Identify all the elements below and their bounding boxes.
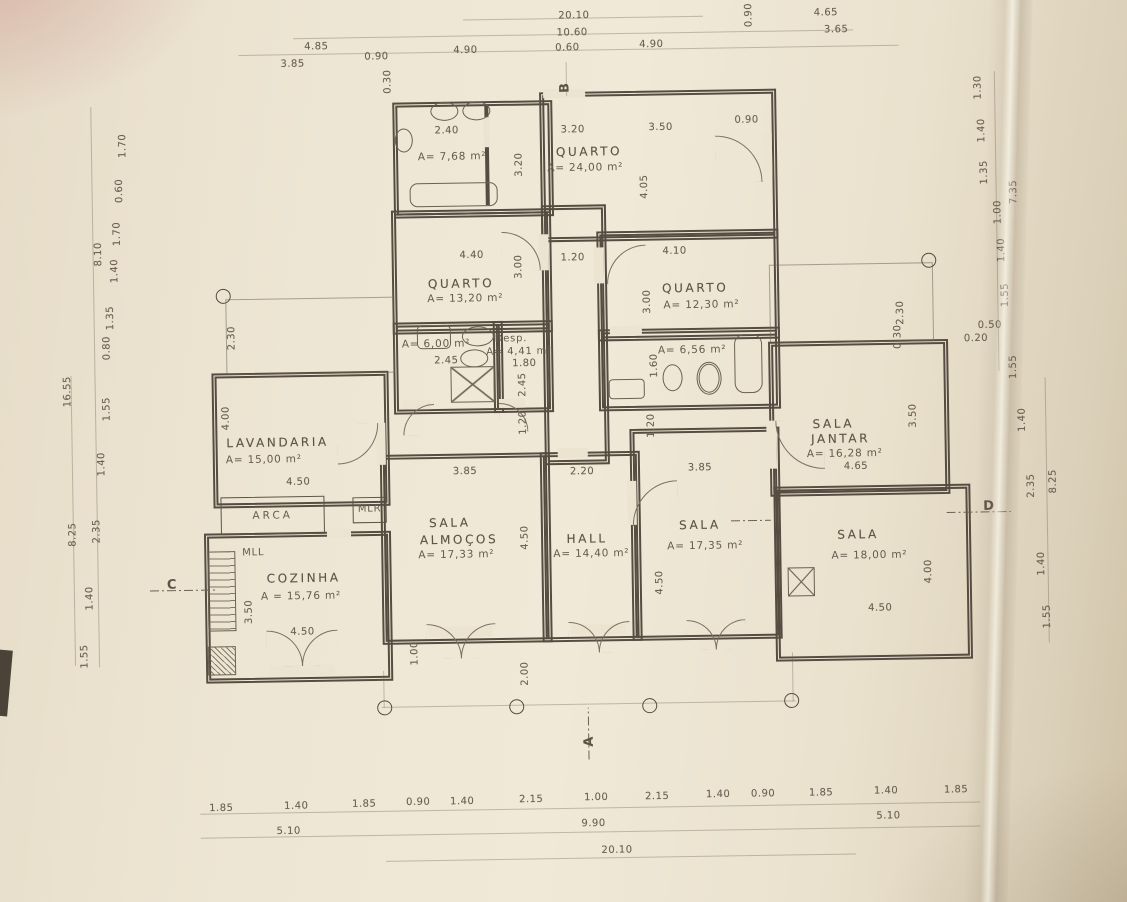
section-marker-b: B xyxy=(557,83,572,93)
dim-label: 1.70 xyxy=(112,222,123,246)
room-area: A= 6,00 m² xyxy=(402,337,471,350)
room-name: SALA xyxy=(837,527,879,542)
room-area: A= 15,00 m² xyxy=(226,453,302,466)
room-name: LAVANDARIA xyxy=(226,435,329,451)
dim-label: 4.65 xyxy=(814,7,838,18)
room-area: A= 17,33 m² xyxy=(418,548,494,561)
room-area: A= 12,30 m² xyxy=(663,298,739,311)
scanned-floor-plan-sheet: B A C D A= 7,68 m² QUARTO A= 24,00 m² QU… xyxy=(0,0,1127,902)
dim-label: 0.30 xyxy=(892,325,903,349)
room-area: A= 13,20 m² xyxy=(427,292,503,305)
dim-label: 8.25 xyxy=(67,522,78,546)
dim-label: 16.55 xyxy=(62,376,73,407)
dim-label: 1.40 xyxy=(96,452,107,476)
dim-label: 1.35 xyxy=(105,306,116,330)
dim-label: 2.20 xyxy=(570,466,594,477)
dimension-line xyxy=(70,376,76,666)
dim-label: 3.50 xyxy=(648,122,672,133)
dimension-line xyxy=(90,107,100,667)
dim-label: 20.10 xyxy=(558,10,589,21)
room-area: A= 17,35 m² xyxy=(667,539,743,552)
dim-label: 4.05 xyxy=(639,174,650,198)
section-marker-a: A xyxy=(582,736,597,746)
dim-label: 4.00 xyxy=(220,406,231,430)
dim-label: 5.10 xyxy=(876,810,900,821)
toilet xyxy=(662,364,682,391)
dim-label: 2.35 xyxy=(91,519,102,543)
dim-label: 2.45 xyxy=(517,372,528,396)
dim-label: 1.40 xyxy=(109,259,120,283)
dim-label: 3.85 xyxy=(688,462,712,473)
dim-label: 4.65 xyxy=(844,461,868,472)
section-axis-line xyxy=(588,708,590,760)
dim-label: 3.85 xyxy=(280,59,304,70)
dim-label: 1.55 xyxy=(1042,604,1053,628)
shower xyxy=(450,366,495,403)
wall xyxy=(391,208,553,334)
floor-plan-drawing: B A C D A= 7,68 m² QUARTO A= 24,00 m² QU… xyxy=(0,0,1127,902)
dimension-line xyxy=(1045,377,1050,642)
door-opening xyxy=(763,133,773,177)
dim-label: 9.90 xyxy=(581,818,605,829)
dim-label: 1.40 xyxy=(84,586,95,610)
wall xyxy=(629,427,782,641)
terrace-outline xyxy=(769,262,934,344)
column-marker xyxy=(377,700,392,715)
dim-label: 0.60 xyxy=(114,179,125,203)
dim-label: 1.40 xyxy=(450,796,474,807)
dim-label: 1.80 xyxy=(512,358,536,369)
room-area: A= 4,41 m² xyxy=(486,346,552,358)
column-marker xyxy=(921,253,936,268)
dim-label: 3.50 xyxy=(908,403,919,427)
room-name: HALL xyxy=(566,531,607,546)
dim-label: 1.00 xyxy=(584,792,608,803)
dim-label: 3.20 xyxy=(514,152,525,176)
dim-label: 1.20 xyxy=(518,410,529,434)
dim-label: 1.85 xyxy=(352,798,376,809)
dim-label: 4.00 xyxy=(923,559,934,583)
dim-label: 4.40 xyxy=(459,250,483,261)
dim-label: 1.00 xyxy=(409,641,420,665)
room-name: SALA xyxy=(812,416,854,431)
dim-label: 4.50 xyxy=(286,476,310,487)
dim-label: 3.00 xyxy=(642,289,653,313)
dim-label: 3.00 xyxy=(513,254,524,278)
dim-label: 4.50 xyxy=(654,570,665,594)
door-opening xyxy=(594,247,605,283)
dim-label: 1.85 xyxy=(209,803,233,814)
column-marker xyxy=(216,289,231,304)
sink xyxy=(609,379,645,400)
dim-label: 1.40 xyxy=(706,789,730,800)
closet-label: ARCA xyxy=(252,509,293,522)
dim-label: 0.90 xyxy=(734,114,758,125)
room-area: A= 16,28 m² xyxy=(807,447,883,460)
dim-label: 3.20 xyxy=(560,124,584,135)
dim-label: 5.10 xyxy=(276,826,300,837)
wall xyxy=(541,204,610,465)
dim-label: 2.45 xyxy=(434,355,458,366)
dim-label: 4.85 xyxy=(304,41,328,52)
room-name: ALMOÇOS xyxy=(420,532,499,547)
room-name: COZINHA xyxy=(267,571,341,586)
dim-label: 1.20 xyxy=(560,252,584,263)
door-opening xyxy=(483,117,489,147)
room-name: SALA xyxy=(429,515,471,530)
hatch-box xyxy=(208,646,236,675)
dim-label: 8.10 xyxy=(93,242,104,266)
dim-label: 2.40 xyxy=(434,125,458,136)
dim-label: 2.30 xyxy=(895,300,906,324)
dim-label: 4.90 xyxy=(639,39,663,50)
dim-label: 2.35 xyxy=(1026,473,1037,497)
dim-label: 10.60 xyxy=(556,27,587,38)
door-opening xyxy=(327,528,351,537)
dim-label: 4.50 xyxy=(868,602,892,613)
dim-label: 0.90 xyxy=(743,3,754,27)
dim-label: 1.30 xyxy=(972,75,983,99)
dim-label: 4.50 xyxy=(290,626,314,637)
dim-label: 4.50 xyxy=(519,525,530,549)
room-area: A= 6,56 m² xyxy=(658,343,727,356)
dim-label: 0.90 xyxy=(364,51,388,62)
bathtub xyxy=(409,182,497,207)
room-name: QUARTO xyxy=(556,144,622,159)
dim-label: 3.50 xyxy=(244,600,255,624)
closet-label: MLL xyxy=(242,547,264,558)
dimension-line xyxy=(200,801,980,814)
dim-label: 1.70 xyxy=(117,134,128,158)
room-area: A= 14,40 m² xyxy=(553,547,629,560)
dim-label: 1.40 xyxy=(874,785,898,796)
room-name: QUARTO xyxy=(662,280,728,295)
dim-label: 1.85 xyxy=(809,787,833,798)
dim-label: 1.55 xyxy=(101,397,112,421)
dim-label: 20.10 xyxy=(601,844,632,855)
column-marker xyxy=(642,698,657,713)
dim-label: 0.80 xyxy=(101,336,112,360)
room-area: A= 7,68 m² xyxy=(418,150,487,163)
room-area: A= 18,00 m² xyxy=(831,549,907,562)
dim-label: 1.40 xyxy=(1036,551,1047,575)
dim-label: 0.60 xyxy=(555,42,579,53)
dim-label: 3.65 xyxy=(824,24,848,35)
dim-label: 4.10 xyxy=(662,246,686,257)
toilet xyxy=(395,128,413,152)
closet-label: MLR xyxy=(358,503,382,514)
room-area: A = 15,76 m² xyxy=(261,590,341,603)
dim-label: 1.85 xyxy=(944,784,968,795)
fireplace xyxy=(788,567,815,596)
door-opening xyxy=(610,326,642,336)
service-stairs xyxy=(207,551,236,631)
dim-label: 1.55 xyxy=(79,644,90,668)
wall xyxy=(768,339,950,497)
dim-label: 1.40 xyxy=(284,801,308,812)
section-marker-c: C xyxy=(167,578,177,593)
dim-label: 0.90 xyxy=(406,797,430,808)
terrace-outline xyxy=(225,297,395,376)
dim-label: 1.60 xyxy=(649,353,660,377)
dim-label: 0.30 xyxy=(382,69,393,93)
room-name: Desp. xyxy=(495,333,528,345)
dim-label: 2.15 xyxy=(519,794,543,805)
dim-label: 2.15 xyxy=(645,791,669,802)
column-marker xyxy=(509,699,524,714)
dim-label: 3.85 xyxy=(453,466,477,477)
dim-label: 1.20 xyxy=(646,413,657,437)
dim-label: 2.00 xyxy=(520,661,531,685)
room-name: JANTAR xyxy=(811,431,870,446)
dim-label: 4.90 xyxy=(453,45,477,56)
dim-label: 0.90 xyxy=(751,788,775,799)
bidet xyxy=(696,362,722,395)
room-name: QUARTO xyxy=(428,276,494,291)
dim-label: 2.30 xyxy=(226,326,237,350)
door-opening xyxy=(558,448,588,458)
column-marker xyxy=(784,693,799,708)
bathtub xyxy=(734,334,763,393)
room-area: A= 24,00 m² xyxy=(547,161,623,174)
dim-label: 8.25 xyxy=(1048,469,1059,493)
room-name: SALA xyxy=(679,518,721,533)
